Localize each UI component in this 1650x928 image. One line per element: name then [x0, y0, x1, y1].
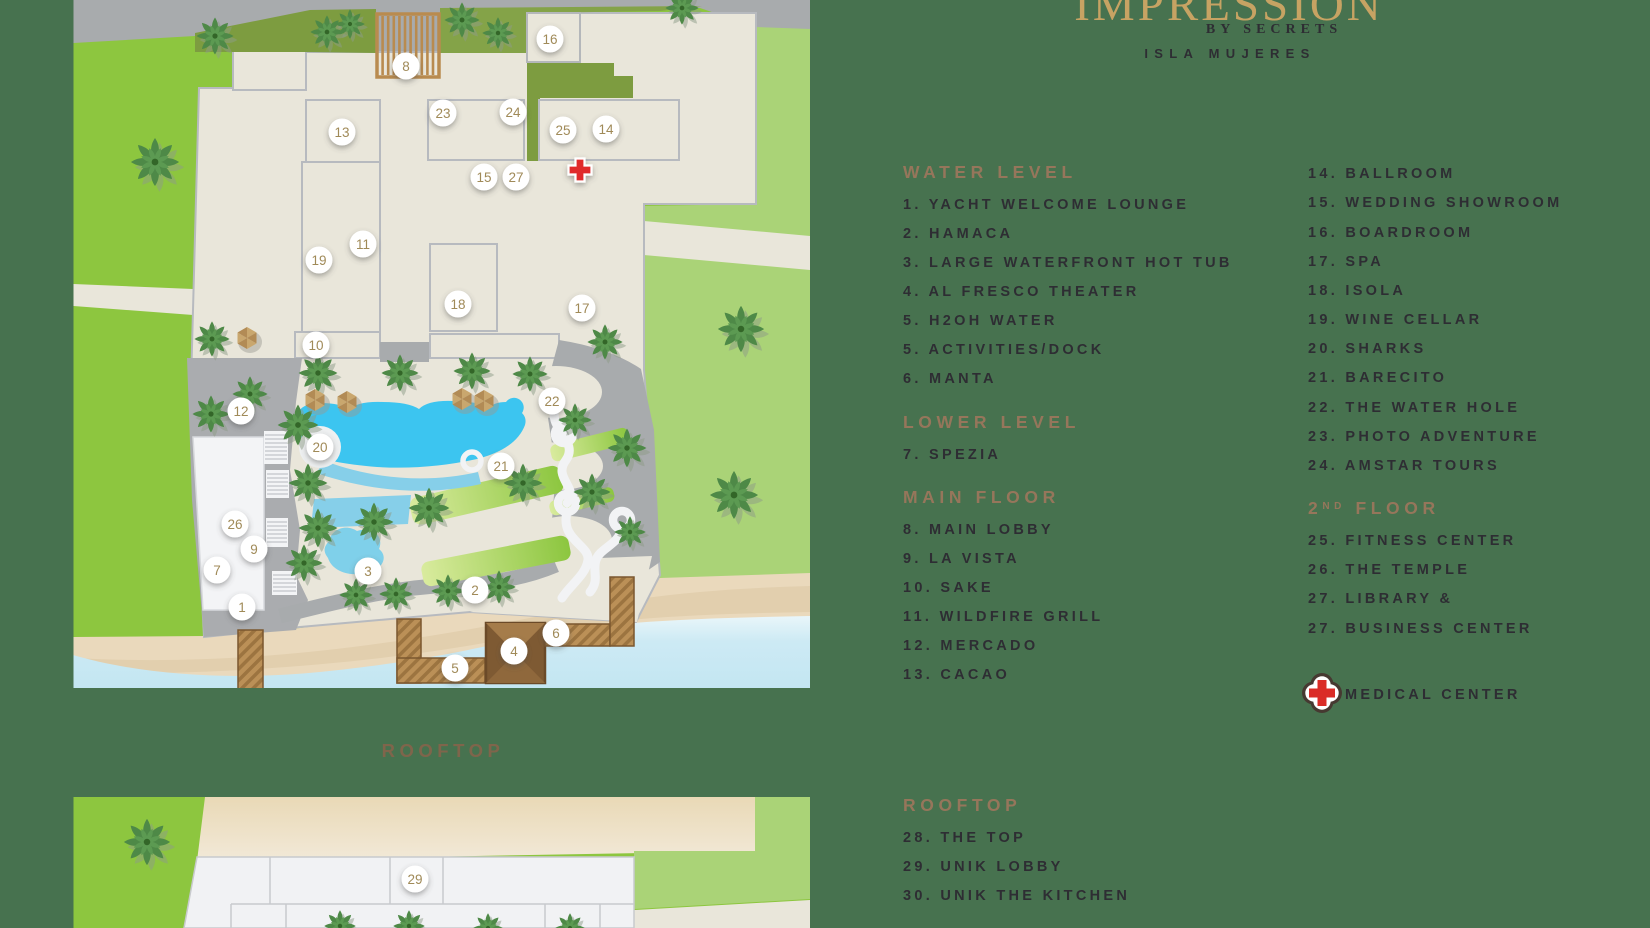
- svg-text:17: 17: [574, 301, 589, 316]
- svg-text:WATER LEVEL: WATER LEVEL: [903, 162, 1077, 182]
- svg-text:18: 18: [450, 297, 465, 312]
- svg-text:26: 26: [227, 517, 242, 532]
- svg-text:25. FITNESS CENTER: 25. FITNESS CENTER: [1308, 533, 1516, 549]
- svg-text:ISLA MUJERES: ISLA MUJERES: [1144, 46, 1315, 61]
- svg-text:4: 4: [510, 644, 518, 659]
- svg-text:3. LARGE WATERFRONT HOT TUB: 3. LARGE WATERFRONT HOT TUB: [903, 255, 1233, 271]
- svg-text:24. AMSTAR TOURS: 24. AMSTAR TOURS: [1308, 458, 1500, 474]
- svg-text:23. PHOTO ADVENTURE: 23. PHOTO ADVENTURE: [1308, 429, 1540, 445]
- svg-text:12. MERCADO: 12. MERCADO: [903, 638, 1038, 654]
- svg-text:23: 23: [435, 106, 450, 121]
- svg-text:ROOFTOP: ROOFTOP: [382, 740, 505, 761]
- svg-text:18. ISOLA: 18. ISOLA: [1308, 283, 1406, 299]
- svg-text:29: 29: [407, 872, 422, 887]
- svg-text:22. THE WATER HOLE: 22. THE WATER HOLE: [1308, 400, 1520, 416]
- svg-text:20. SHARKS: 20. SHARKS: [1308, 341, 1426, 357]
- svg-text:6. MANTA: 6. MANTA: [903, 371, 997, 387]
- svg-text:27. LIBRARY &: 27. LIBRARY &: [1308, 591, 1453, 607]
- svg-text:22: 22: [544, 394, 559, 409]
- svg-text:7: 7: [213, 563, 221, 578]
- svg-text:2: 2: [471, 583, 479, 598]
- svg-text:9: 9: [250, 542, 258, 557]
- svg-text:30. UNIK THE KITCHEN: 30. UNIK THE KITCHEN: [903, 888, 1130, 904]
- svg-text:2. HAMACA: 2. HAMACA: [903, 226, 1013, 242]
- svg-text:11: 11: [356, 237, 370, 252]
- svg-text:24: 24: [505, 105, 521, 120]
- svg-text:15: 15: [476, 170, 491, 185]
- svg-text:27: 27: [508, 170, 523, 185]
- svg-text:5: 5: [451, 661, 459, 676]
- svg-text:11. WILDFIRE GRILL: 11. WILDFIRE GRILL: [903, 609, 1103, 625]
- svg-text:9. LA VISTA: 9. LA VISTA: [903, 551, 1020, 567]
- svg-text:26. THE TEMPLE: 26. THE TEMPLE: [1308, 562, 1470, 578]
- svg-text:16: 16: [542, 32, 557, 47]
- svg-text:19: 19: [311, 253, 326, 268]
- svg-text:20: 20: [312, 440, 327, 455]
- svg-text:12: 12: [233, 404, 248, 419]
- svg-text:28. THE TOP: 28. THE TOP: [903, 830, 1026, 846]
- svg-text:BY SECRETS: BY SECRETS: [1206, 22, 1342, 37]
- svg-text:ROOFTOP: ROOFTOP: [903, 795, 1021, 815]
- svg-text:MAIN FLOOR: MAIN FLOOR: [903, 487, 1060, 507]
- svg-text:10: 10: [308, 338, 323, 353]
- svg-text:8. MAIN LOBBY: 8. MAIN LOBBY: [903, 522, 1054, 538]
- svg-text:14. BALLROOM: 14. BALLROOM: [1308, 166, 1456, 182]
- svg-text:21. BARECITO: 21. BARECITO: [1308, 370, 1447, 386]
- svg-text:13. CACAO: 13. CACAO: [903, 667, 1010, 683]
- svg-text:19. WINE CELLAR: 19. WINE CELLAR: [1308, 312, 1482, 328]
- svg-text:MEDICAL CENTER: MEDICAL CENTER: [1345, 687, 1521, 703]
- svg-text:25: 25: [555, 123, 570, 138]
- svg-text:10. SAKE: 10. SAKE: [903, 580, 994, 596]
- svg-text:3: 3: [364, 564, 372, 579]
- svg-text:13: 13: [334, 125, 349, 140]
- svg-text:29. UNIK LOBBY: 29. UNIK LOBBY: [903, 859, 1064, 875]
- svg-text:5. ACTIVITIES/DOCK: 5. ACTIVITIES/DOCK: [903, 342, 1104, 358]
- svg-text:7. SPEZIA: 7. SPEZIA: [903, 447, 1001, 463]
- svg-text:21: 21: [493, 459, 508, 474]
- svg-text:6: 6: [552, 626, 560, 641]
- svg-text:LOWER LEVEL: LOWER LEVEL: [903, 412, 1080, 432]
- svg-text:15. WEDDING SHOWROOM: 15. WEDDING SHOWROOM: [1308, 195, 1563, 211]
- svg-text:14: 14: [598, 122, 614, 137]
- svg-text:17. SPA: 17. SPA: [1308, 254, 1384, 270]
- svg-text:1. YACHT WELCOME LOUNGE: 1. YACHT WELCOME LOUNGE: [903, 197, 1189, 213]
- svg-text:4. AL FRESCO THEATER: 4. AL FRESCO THEATER: [903, 284, 1140, 300]
- svg-text:8: 8: [402, 59, 410, 74]
- svg-text:1: 1: [238, 600, 246, 615]
- svg-text:16. BOARDROOM: 16. BOARDROOM: [1308, 225, 1473, 241]
- svg-text:5. H2OH WATER: 5. H2OH WATER: [903, 313, 1058, 329]
- svg-text:27. BUSINESS CENTER: 27. BUSINESS CENTER: [1308, 621, 1533, 637]
